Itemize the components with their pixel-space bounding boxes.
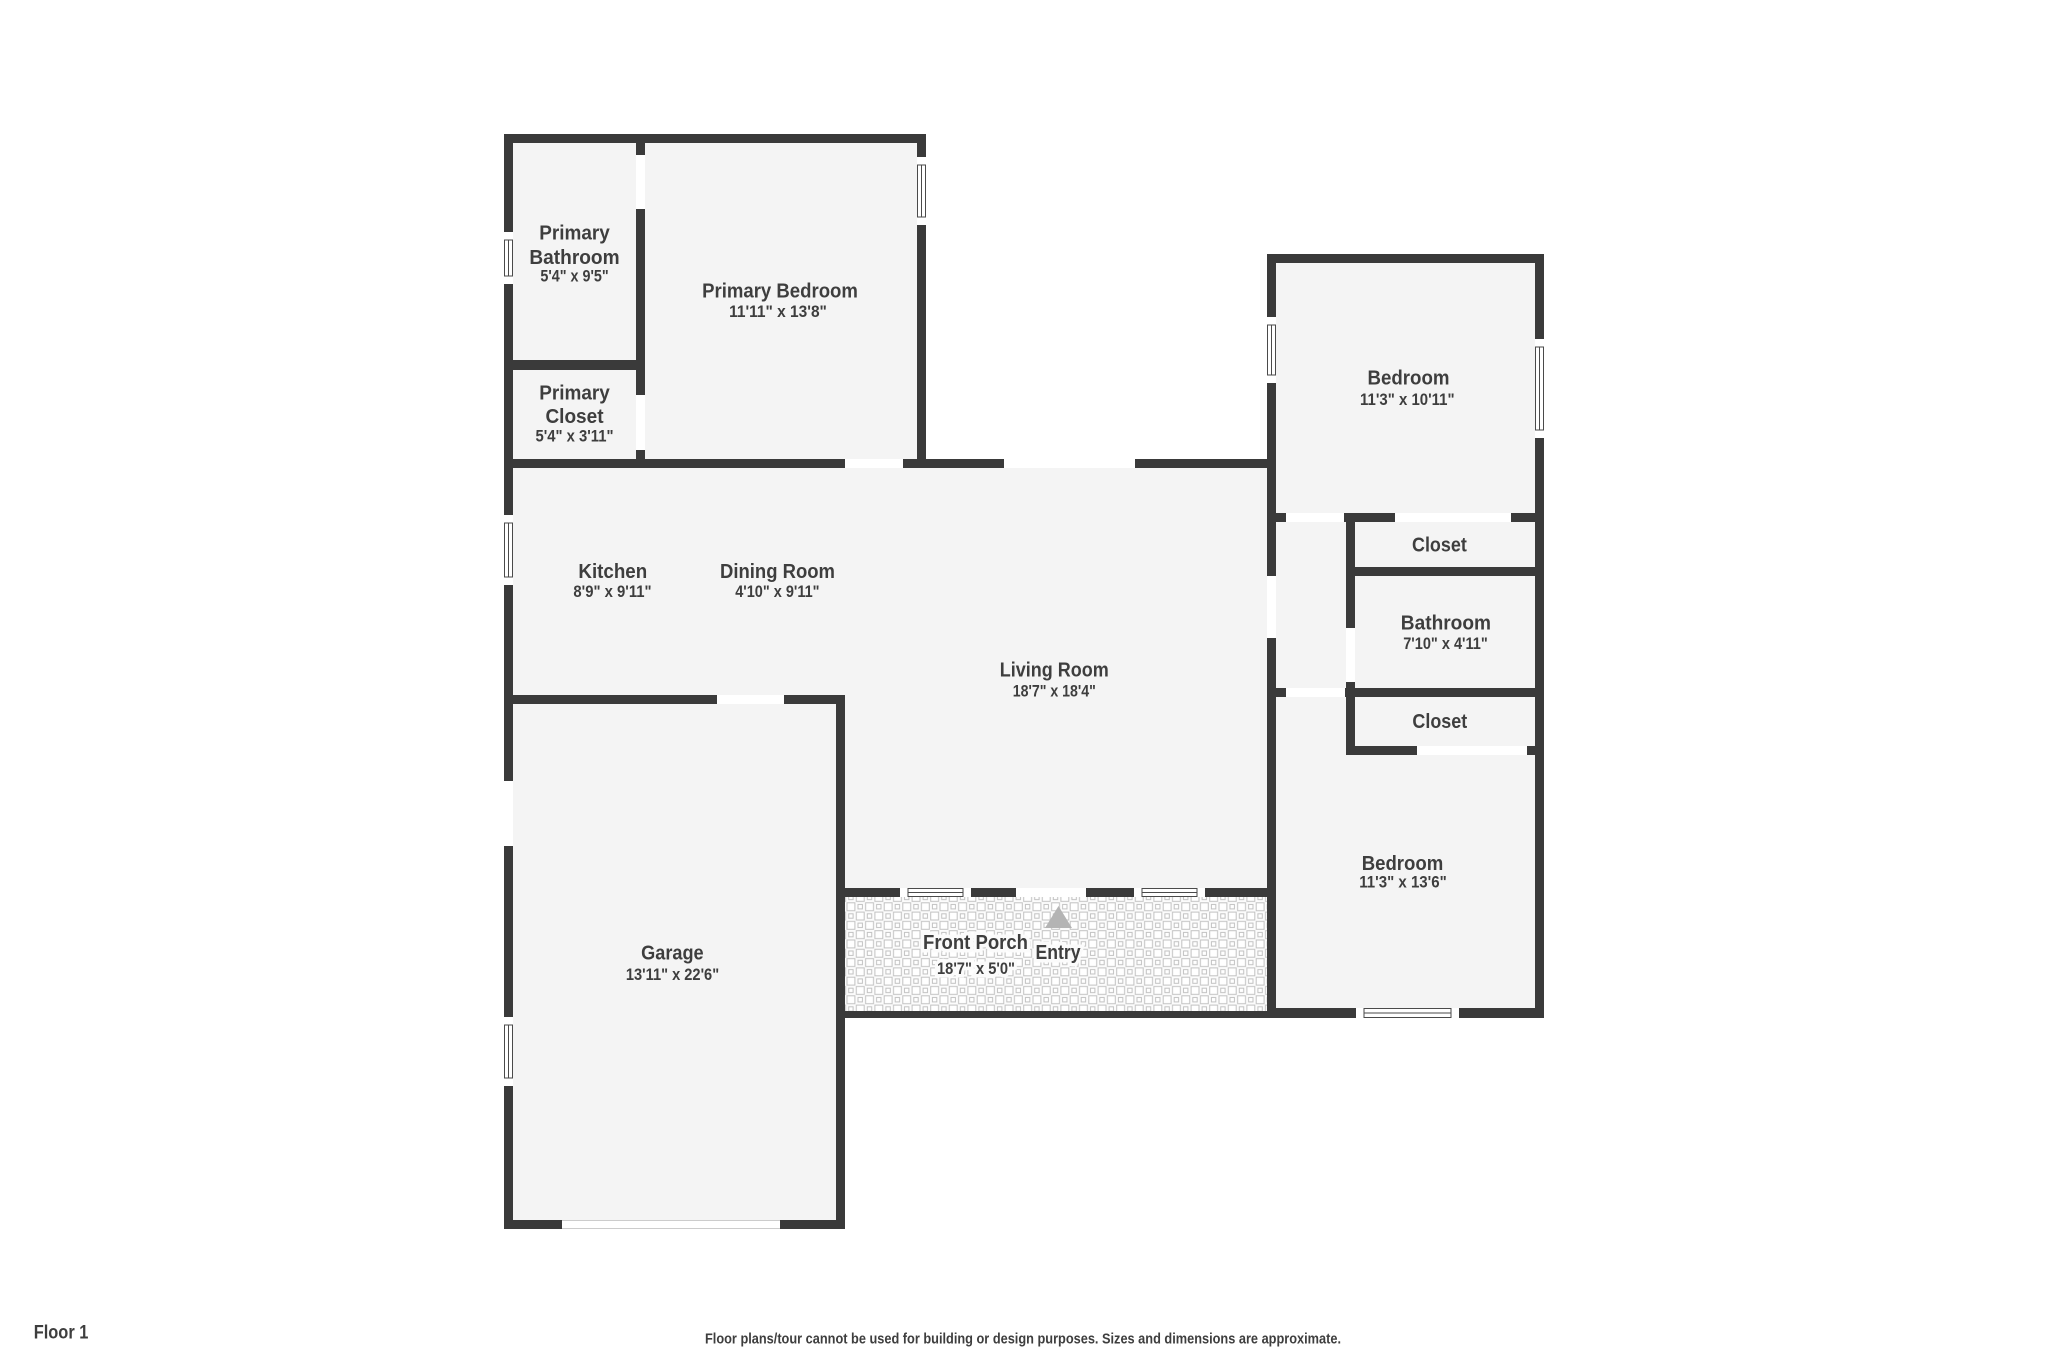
svg-text:Front Porch: Front Porch xyxy=(923,932,1028,954)
svg-text:Primary: Primary xyxy=(539,383,610,405)
svg-text:7'10" x 4'11": 7'10" x 4'11" xyxy=(1403,634,1488,653)
svg-text:Closet: Closet xyxy=(1412,534,1467,556)
svg-text:Kitchen: Kitchen xyxy=(578,561,647,583)
svg-text:Primary: Primary xyxy=(539,223,610,245)
svg-text:11'11" x 13'8": 11'11" x 13'8" xyxy=(729,302,827,321)
svg-text:5'4" x 3'11": 5'4" x 3'11" xyxy=(536,427,614,446)
svg-text:Entry: Entry xyxy=(1036,942,1082,964)
svg-text:11'3" x 13'6": 11'3" x 13'6" xyxy=(1359,873,1447,892)
svg-text:4'10" x 9'11": 4'10" x 9'11" xyxy=(735,582,819,601)
svg-text:18'7" x 5'0": 18'7" x 5'0" xyxy=(937,959,1015,978)
svg-text:8'9" x 9'11": 8'9" x 9'11" xyxy=(573,582,651,601)
svg-text:Closet: Closet xyxy=(545,406,603,428)
svg-text:18'7" x 18'4": 18'7" x 18'4" xyxy=(1013,681,1096,700)
svg-text:11'3" x 10'11": 11'3" x 10'11" xyxy=(1360,390,1455,409)
svg-text:13'11" x 22'6": 13'11" x 22'6" xyxy=(626,965,719,984)
svg-text:Bathroom: Bathroom xyxy=(1401,613,1491,635)
svg-text:Primary Bedroom: Primary Bedroom xyxy=(702,280,858,302)
svg-text:Garage: Garage xyxy=(641,942,704,964)
svg-text:Bedroom: Bedroom xyxy=(1368,367,1450,389)
svg-text:Floor plans/tour cannot be use: Floor plans/tour cannot be used for buil… xyxy=(705,1331,1341,1348)
svg-text:Dining Room: Dining Room xyxy=(720,561,835,583)
svg-text:Floor 1: Floor 1 xyxy=(34,1322,89,1343)
svg-text:Living Room: Living Room xyxy=(1000,659,1109,681)
svg-text:5'4" x 9'5": 5'4" x 9'5" xyxy=(540,267,608,286)
svg-text:Closet: Closet xyxy=(1412,711,1467,733)
